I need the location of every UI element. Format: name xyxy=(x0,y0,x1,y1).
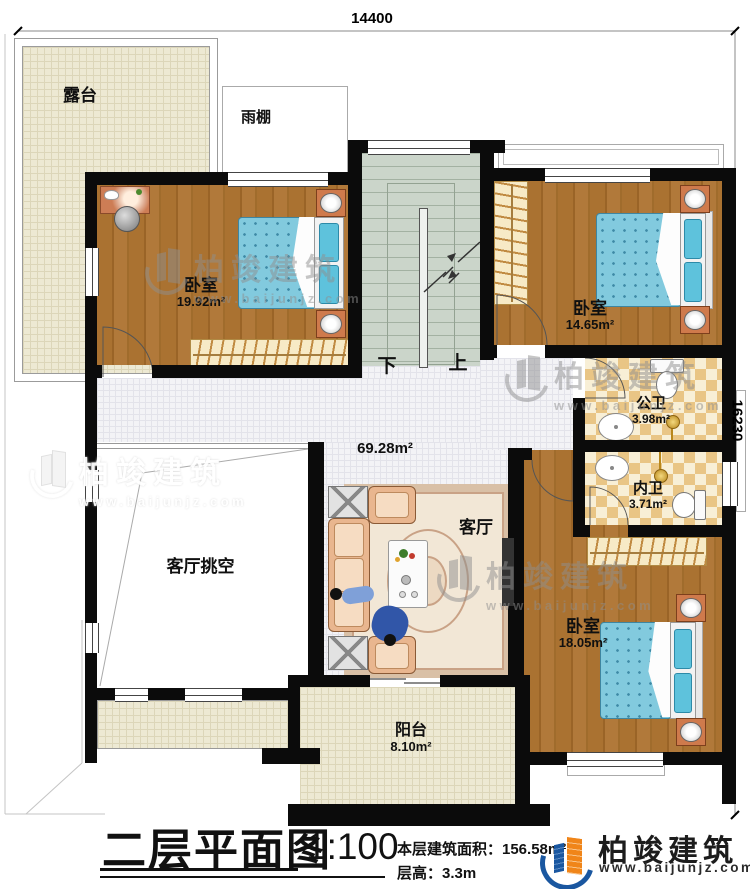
wall xyxy=(85,172,97,248)
stair-up-label: 上 xyxy=(443,353,473,374)
window xyxy=(722,462,738,506)
logo-building-blue xyxy=(554,843,564,873)
room-label-terrace: 露台 xyxy=(40,86,120,105)
watermark-site: www.baijunjz.com xyxy=(194,291,362,306)
floor-plan: 14400 16230 露台 雨棚 下 上 卧室 19.92m² xyxy=(0,0,750,889)
watermark-logo-icon xyxy=(145,245,187,299)
watermark-logo-icon xyxy=(505,352,547,406)
watermark: 柏竣建筑www.baijunjz.com xyxy=(145,245,362,306)
watermark-site: www.baijunjz.com xyxy=(554,398,722,413)
room-label-void: 客厅挑空 xyxy=(128,557,273,576)
window xyxy=(545,168,650,183)
window xyxy=(185,688,242,702)
stair-down-label: 下 xyxy=(372,356,402,377)
title-underline xyxy=(100,868,298,871)
watermark: 柏竣建筑www.baijunjz.com xyxy=(505,352,722,413)
wall xyxy=(573,440,585,537)
watermark-brand: 柏竣建筑 xyxy=(554,352,722,396)
dimension-right: 16230 xyxy=(729,386,746,456)
logo-site: www.baijunjz.com xyxy=(599,860,750,875)
window xyxy=(85,248,99,296)
wall xyxy=(85,653,97,763)
room-label-bedroom2: 卧室 14.65m² xyxy=(545,299,635,333)
wall xyxy=(573,440,736,452)
dimension-top: 14400 xyxy=(327,10,417,27)
watermark-brand: 柏竣建筑 xyxy=(194,245,362,289)
wall xyxy=(85,172,228,185)
wall xyxy=(573,525,590,537)
floor-height-label: 层高：3.3m xyxy=(397,862,476,883)
window xyxy=(567,752,663,767)
room-label-living-area: 69.28m² xyxy=(340,441,430,458)
window xyxy=(368,140,470,155)
window xyxy=(85,623,99,653)
room-label-balcony: 阳台 8.10m² xyxy=(368,722,454,754)
wall xyxy=(628,525,736,537)
room-label-living: 客厅 xyxy=(436,518,516,537)
room-label-bedroom3: 卧室 18.05m² xyxy=(538,617,628,651)
wall xyxy=(262,748,320,764)
window xyxy=(115,688,148,702)
wall xyxy=(152,365,348,378)
wall xyxy=(663,752,736,765)
wall xyxy=(148,688,185,700)
wall xyxy=(515,752,567,765)
wall xyxy=(85,502,97,623)
wall xyxy=(308,442,324,675)
wall xyxy=(328,172,348,185)
window-sill-inner xyxy=(503,149,719,165)
wall xyxy=(480,345,497,358)
wall xyxy=(85,688,115,700)
room-label-inner-bath: 内卫 3.71m² xyxy=(612,481,684,511)
window-sill xyxy=(498,144,724,170)
sliding-door xyxy=(370,679,440,683)
wall xyxy=(480,140,494,360)
watermark: 柏竣建筑www.baijunjz.com xyxy=(30,448,247,509)
wall xyxy=(295,675,370,687)
watermark-logo-icon xyxy=(30,448,72,502)
logo-icon xyxy=(540,828,596,886)
room-label-canopy: 雨棚 xyxy=(226,110,286,127)
title-underline xyxy=(100,876,385,878)
watermark-logo-icon xyxy=(437,552,479,606)
wall xyxy=(494,168,545,181)
stair-arrow xyxy=(424,242,480,292)
scale-label: 1:100 xyxy=(306,826,399,868)
watermark-site: www.baijunjz.com xyxy=(486,598,654,613)
wall xyxy=(348,140,368,153)
window xyxy=(228,172,328,187)
watermark: 柏竣建筑www.baijunjz.com xyxy=(437,552,654,613)
watermark-brand: 柏竣建筑 xyxy=(486,552,654,596)
logo-building-orange xyxy=(567,837,582,875)
wall xyxy=(515,675,530,806)
watermark-brand: 柏竣建筑 xyxy=(79,448,247,492)
watermark-site: www.baijunjz.com xyxy=(79,494,247,509)
wall xyxy=(85,365,102,378)
